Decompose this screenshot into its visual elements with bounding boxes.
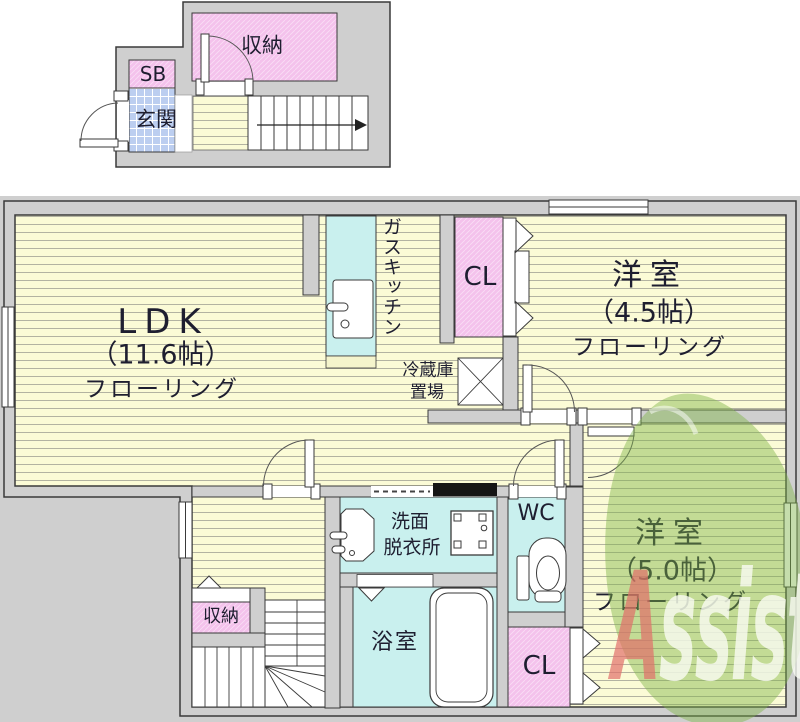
wc-door-leaf — [555, 440, 564, 487]
room45-floor-label: フローリング — [572, 337, 728, 360]
storage-door-opening — [203, 82, 246, 95]
fridge-label-line1: 冷蔵庫 — [403, 363, 454, 380]
closet-upper-door-band — [503, 218, 516, 336]
stairs-lower-run — [192, 647, 265, 707]
room50-name-label: 洋室 — [635, 519, 711, 549]
washer-drain-icon — [481, 525, 487, 531]
entrance-step — [175, 95, 192, 152]
wall-kitchen-peninsula — [303, 215, 319, 295]
ldk-name-label: LDK — [117, 305, 208, 339]
room50-floor-label: フローリング — [593, 592, 749, 615]
washbasin-faucet-icon — [330, 532, 347, 539]
wall-kitchen-right — [440, 215, 454, 343]
mini-floor-plan — [80, 2, 390, 167]
room45-size-label: （4.5帖） — [587, 300, 711, 327]
room45-door-leaf — [523, 365, 532, 412]
floor-plan-page: 収納 SB 玄関 LDK （11.6帖） フローリング ガスキッチン CL 洋室… — [0, 0, 800, 722]
closet-upper-door-panel — [515, 251, 529, 303]
toilet-base — [535, 591, 561, 602]
kitchen-counter-end — [326, 356, 376, 368]
room50-door-leaf — [588, 427, 634, 436]
door-jamb — [578, 408, 587, 425]
fridge-label-line2: 置場 — [410, 385, 444, 402]
closet-lower-label: CL — [523, 653, 556, 679]
mini-storage-label: 収納 — [241, 36, 283, 57]
washroom-label-line1: 洗面 — [391, 513, 429, 532]
closet-lower-door-band — [570, 628, 583, 704]
wall-wc-bottom — [508, 612, 570, 627]
ldk-door-opening — [272, 486, 312, 497]
washbasin-knob-icon — [332, 546, 345, 553]
ldk-size-label: （11.6帖） — [90, 342, 231, 369]
bathtub — [430, 588, 493, 707]
wall-bath-left — [340, 573, 353, 707]
wall-wc-right — [565, 487, 583, 627]
storage-main-label: 収納 — [203, 608, 239, 626]
upper-stairs — [248, 96, 368, 150]
closet-upper-label: CL — [464, 264, 497, 290]
room45-door-opening — [530, 410, 568, 423]
wall-bath-right — [497, 497, 508, 707]
storage-folding-door — [192, 588, 250, 602]
kitchen-faucet-icon — [327, 303, 348, 311]
stair-landing — [193, 96, 248, 150]
door-jamb — [632, 408, 641, 425]
room50-size-label: （5.0帖） — [610, 558, 734, 585]
wc-door-opening — [518, 486, 558, 497]
shoe-box-label: SB — [140, 64, 166, 84]
washroom-label-line2: 脱衣所 — [383, 539, 440, 558]
toilet-bowl — [529, 538, 566, 598]
wall-hall-right — [570, 423, 583, 487]
door-swing-arc — [81, 103, 118, 141]
wc-label: WC — [517, 503, 554, 525]
door-jamb — [114, 91, 128, 101]
washbasin-drain-icon — [350, 551, 355, 556]
kitchen-label: ガスキッチン — [381, 217, 400, 337]
bath-door-opening — [357, 575, 433, 588]
wall-storage-bottom — [192, 633, 265, 647]
room50-door-opening — [586, 410, 633, 423]
entrance-door-leaf — [80, 139, 118, 147]
ldk-door-leaf — [305, 440, 314, 487]
entrance-door-opening — [117, 100, 129, 142]
entrance-label: 玄関 — [135, 110, 177, 131]
toilet-tank — [517, 556, 529, 600]
door-jamb — [263, 484, 272, 499]
storage-door-leaf — [201, 34, 209, 82]
ldk-floor-label: フローリング — [84, 379, 240, 402]
hanging-wall-bar — [433, 483, 497, 496]
kitchen-drain-icon — [341, 320, 349, 328]
room45-name-label: 洋室 — [612, 261, 688, 291]
stairs-winder-run — [265, 600, 325, 707]
wall-stairs-right — [325, 497, 340, 708]
door-jamb — [245, 79, 253, 95]
bath-label: 浴室 — [371, 632, 419, 654]
door-jamb — [509, 484, 518, 499]
